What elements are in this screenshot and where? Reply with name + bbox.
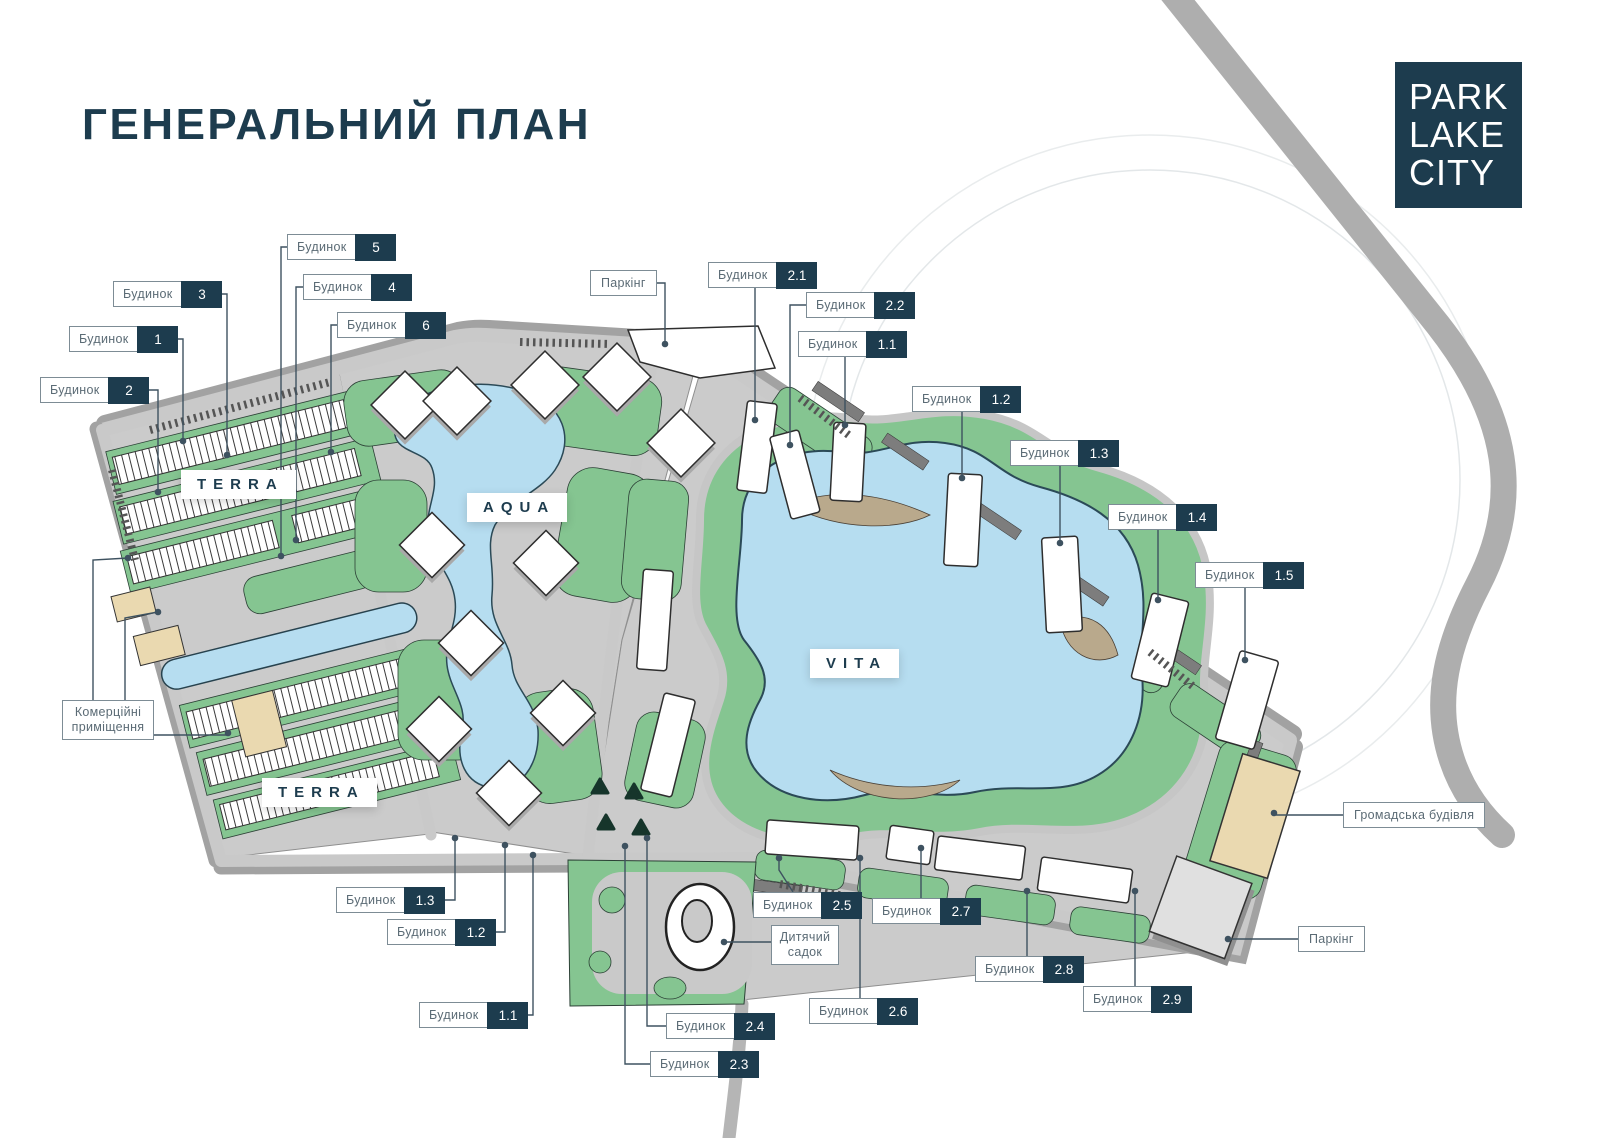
district-label-terra-south[interactable]: TERRA bbox=[262, 778, 377, 807]
marker-parking-top[interactable]: Паркінг bbox=[590, 270, 657, 296]
marker-budynok-1-5[interactable]: Будинок1.5 bbox=[1195, 562, 1304, 588]
marker-budynok-1-3-terra[interactable]: Будинок1.3 bbox=[336, 887, 445, 913]
district-label-terra-north[interactable]: TERRA bbox=[181, 470, 296, 499]
marker-kindergarten[interactable]: Дитячий садок bbox=[771, 925, 839, 965]
district-label-aqua[interactable]: AQUA bbox=[467, 493, 567, 522]
marker-budynok-2-4[interactable]: Будинок2.4 bbox=[666, 1013, 775, 1039]
marker-budynok-1-4[interactable]: Будинок1.4 bbox=[1108, 504, 1217, 530]
marker-budynok-2[interactable]: Будинок2 bbox=[40, 377, 149, 403]
masterplan-page: EVA GROUP bbox=[0, 0, 1600, 1138]
masterplan-canvas: EVA GROUP bbox=[0, 0, 1600, 1138]
marker-public-building[interactable]: Громадська будівля bbox=[1343, 802, 1485, 828]
brand-logo: PARK LAKE CITY bbox=[1395, 62, 1522, 208]
marker-budynok-1-1-vita[interactable]: Будинок1.1 bbox=[798, 331, 907, 357]
marker-budynok-3[interactable]: Будинок3 bbox=[113, 281, 222, 307]
marker-budynok-2-2[interactable]: Будинок2.2 bbox=[806, 292, 915, 318]
brand-logo-line: PARK bbox=[1409, 78, 1522, 116]
marker-budynok-1-2-terra[interactable]: Будинок1.2 bbox=[387, 919, 496, 945]
marker-budynok-2-8[interactable]: Будинок2.8 bbox=[975, 956, 1084, 982]
marker-budynok-2-9[interactable]: Будинок2.9 bbox=[1083, 986, 1192, 1012]
marker-parking-south[interactable]: Паркінг bbox=[1298, 926, 1365, 952]
marker-budynok-2-6[interactable]: Будинок2.6 bbox=[809, 998, 918, 1024]
marker-budynok-2-5[interactable]: Будинок2.5 bbox=[753, 892, 862, 918]
marker-budynok-6[interactable]: Будинок6 bbox=[337, 312, 446, 338]
marker-budynok-1-1-terra[interactable]: Будинок1.1 bbox=[419, 1002, 528, 1028]
marker-budynok-2-1[interactable]: Будинок2.1 bbox=[708, 262, 817, 288]
marker-budynok-1-2-vita[interactable]: Будинок1.2 bbox=[912, 386, 1021, 412]
marker-budynok-1[interactable]: Будинок1 bbox=[69, 326, 178, 352]
marker-budynok-5[interactable]: Будинок5 bbox=[287, 234, 396, 260]
brand-logo-line: LAKE bbox=[1409, 116, 1522, 154]
marker-commercial-premises[interactable]: Комерційні приміщення bbox=[62, 700, 154, 740]
marker-budynok-1-3-vita[interactable]: Будинок1.3 bbox=[1010, 440, 1119, 466]
district-label-vita[interactable]: VITA bbox=[810, 649, 899, 678]
marker-budynok-4[interactable]: Будинок4 bbox=[303, 274, 412, 300]
marker-budynok-2-3[interactable]: Будинок2.3 bbox=[650, 1051, 759, 1077]
page-title: ГЕНЕРАЛЬНИЙ ПЛАН bbox=[82, 100, 591, 150]
marker-budynok-2-7[interactable]: Будинок2.7 bbox=[872, 898, 981, 924]
brand-logo-line: CITY bbox=[1409, 154, 1522, 192]
